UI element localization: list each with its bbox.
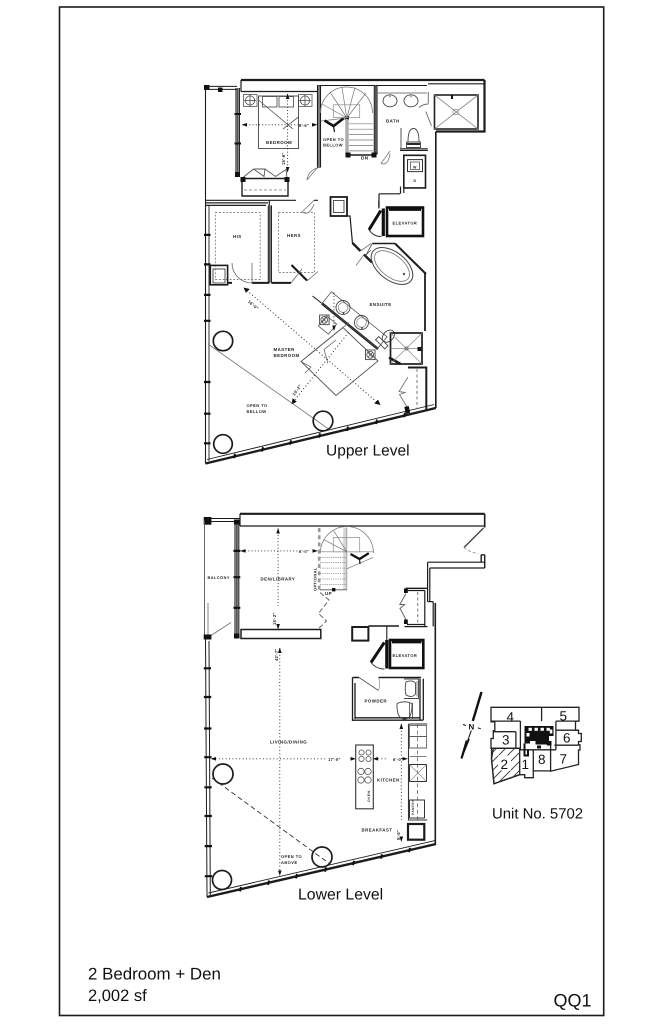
svg-text:D: D [414, 179, 417, 183]
svg-text:Lower Level: Lower Level [298, 887, 383, 904]
svg-text:ABOVE: ABOVE [281, 860, 297, 865]
svg-text:7: 7 [560, 752, 568, 767]
svg-text:1: 1 [522, 757, 530, 772]
svg-text:KITCHEN: KITCHEN [377, 778, 400, 783]
svg-text:8'-6": 8'-6" [299, 123, 309, 128]
svg-text:W: W [413, 165, 417, 169]
svg-text:LIVING/DINING: LIVING/DINING [270, 740, 307, 745]
svg-text:BALCONY: BALCONY [208, 575, 230, 580]
svg-text:BELLOW: BELLOW [323, 143, 343, 148]
svg-text:OVEN: OVEN [367, 790, 371, 802]
svg-text:6'-0": 6'-0" [393, 757, 403, 762]
svg-text:5: 5 [560, 709, 568, 724]
svg-text:2 Bedroom + Den: 2 Bedroom + Den [88, 965, 221, 984]
svg-text:4: 4 [507, 709, 515, 724]
svg-text:15'-2": 15'-2" [272, 612, 277, 625]
svg-text:OPEN TO: OPEN TO [247, 403, 268, 408]
svg-text:UP: UP [325, 591, 332, 596]
svg-text:2,002 sf: 2,002 sf [88, 987, 147, 1005]
svg-text:ELEVATOR: ELEVATOR [393, 653, 418, 658]
svg-text:42'-7": 42'-7" [274, 648, 279, 661]
svg-text:OPEN TO: OPEN TO [323, 137, 344, 142]
svg-text:HIS: HIS [233, 234, 242, 239]
svg-text:OPTIONAL: OPTIONAL [313, 567, 318, 591]
svg-text:BEDROOM: BEDROOM [266, 140, 292, 145]
svg-text:BEDROOM: BEDROOM [274, 353, 300, 358]
svg-text:OPEN TO: OPEN TO [281, 854, 302, 859]
svg-text:BELLOW: BELLOW [247, 409, 267, 414]
svg-text:DN: DN [361, 156, 369, 161]
svg-text:PANTRY: PANTRY [411, 799, 415, 815]
svg-text:8: 8 [538, 752, 546, 767]
svg-text:BATH: BATH [386, 119, 400, 124]
svg-text:POWDER: POWDER [365, 699, 388, 704]
svg-text:MASTER: MASTER [274, 347, 296, 352]
svg-text:2: 2 [501, 757, 509, 772]
svg-text:BREAKFAST: BREAKFAST [362, 828, 393, 833]
svg-text:ENSUITE: ENSUITE [370, 302, 392, 307]
svg-text:ELEVATOR: ELEVATOR [393, 221, 418, 226]
svg-text:5'-6": 5'-6" [396, 830, 401, 840]
svg-text:QQ1: QQ1 [554, 991, 592, 1011]
svg-text:17'-0": 17'-0" [328, 757, 341, 762]
svg-text:Upper Level: Upper Level [326, 443, 410, 460]
svg-text:6: 6 [563, 730, 571, 745]
svg-text:Unit No. 5702: Unit No. 5702 [492, 807, 583, 823]
svg-text:HERS: HERS [287, 233, 301, 238]
svg-text:3: 3 [502, 732, 510, 747]
svg-text:15'-6": 15'-6" [281, 152, 286, 165]
svg-text:N: N [469, 723, 475, 732]
svg-text:6'-0": 6'-0" [299, 549, 309, 554]
